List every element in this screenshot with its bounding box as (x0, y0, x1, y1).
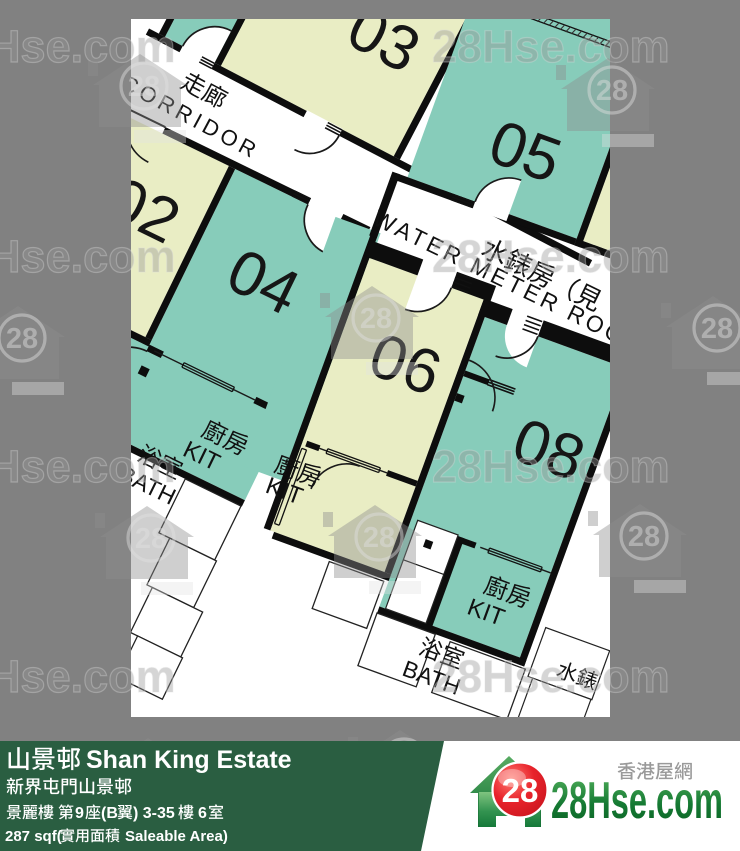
svg-text:28Hse.com: 28Hse.com (0, 651, 176, 702)
svg-text:28: 28 (128, 71, 160, 103)
svg-text:9: 9 (75, 805, 84, 822)
svg-text:28Hse.com: 28Hse.com (432, 21, 670, 72)
svg-text:28: 28 (135, 523, 167, 555)
svg-text:(B: (B (101, 805, 118, 822)
svg-text:Saleable Area): Saleable Area) (125, 828, 228, 845)
svg-text:28: 28 (363, 522, 395, 554)
svg-text:Shan King Estate: Shan King Estate (86, 746, 292, 774)
svg-text:28Hse.com: 28Hse.com (551, 772, 723, 830)
svg-text:28Hse.com: 28Hse.com (0, 441, 176, 492)
svg-text:28: 28 (6, 323, 38, 355)
svg-text:287 sqf(: 287 sqf( (5, 828, 62, 845)
svg-text:6: 6 (198, 805, 207, 822)
svg-text:28: 28 (701, 313, 733, 345)
svg-text:) 3-35: ) 3-35 (133, 805, 175, 822)
svg-text:28Hse.com: 28Hse.com (432, 651, 670, 702)
svg-text:28: 28 (360, 303, 392, 335)
svg-text:28Hse.com: 28Hse.com (432, 231, 670, 282)
svg-text:28: 28 (628, 521, 660, 553)
svg-text:28: 28 (502, 772, 539, 809)
svg-text:28Hse.com: 28Hse.com (0, 231, 176, 282)
svg-text:28Hse.com: 28Hse.com (432, 441, 670, 492)
svg-text:28: 28 (596, 75, 628, 107)
